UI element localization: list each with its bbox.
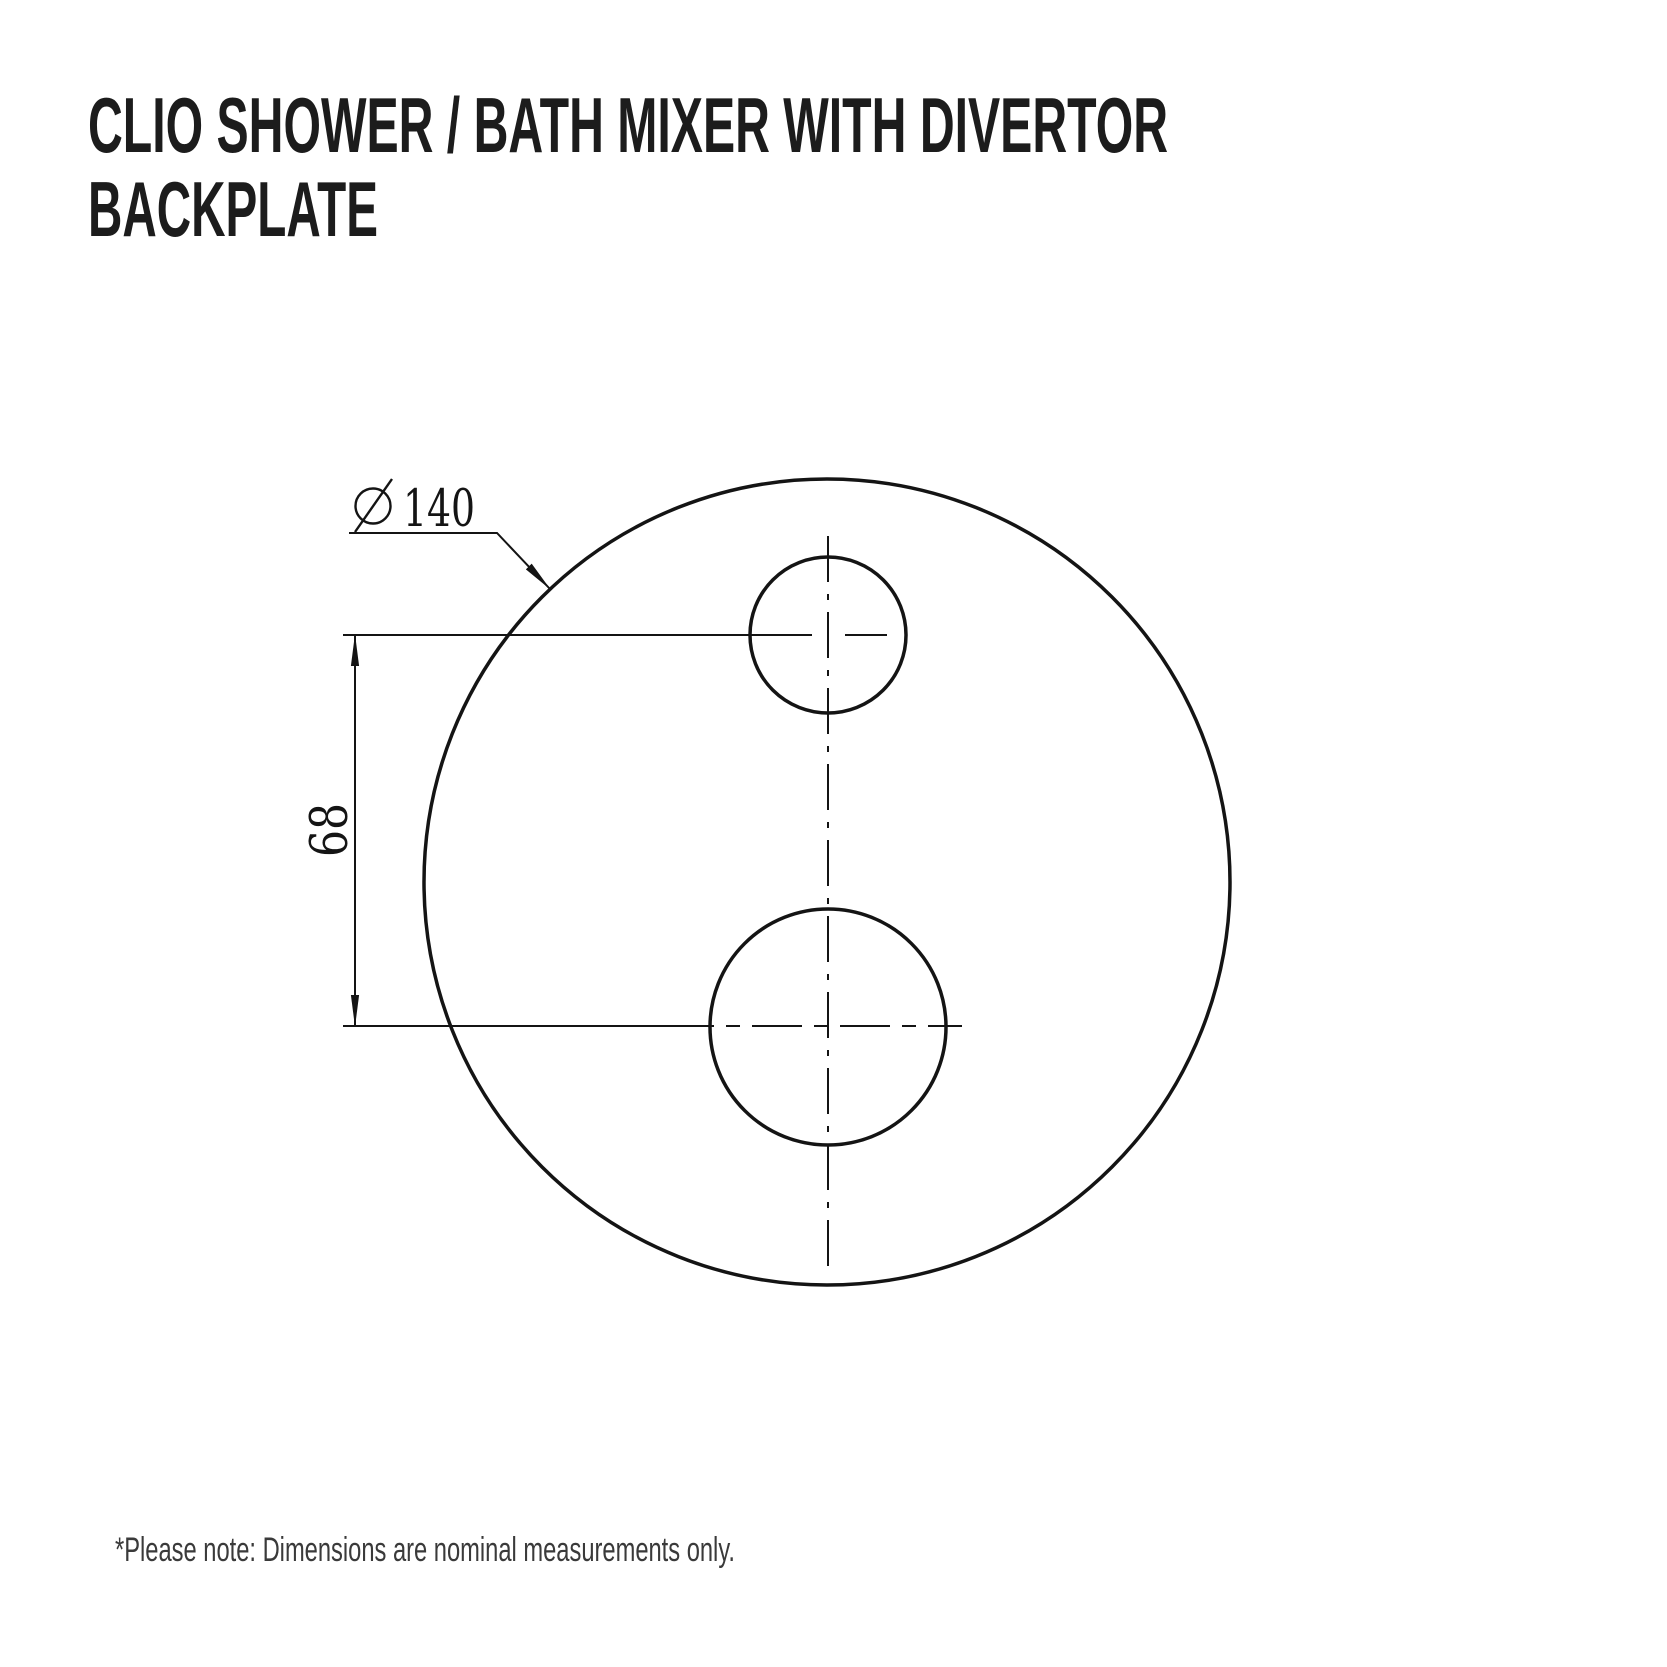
footer-note: *Please note: Dimensions are nominal mea…	[115, 1531, 735, 1569]
diameter-leader-line	[349, 533, 550, 589]
page-title-line2: BACKPLATE	[88, 165, 378, 253]
diameter-symbol-icon	[355, 479, 392, 532]
page-title-line1: CLIO SHOWER / BATH MIXER WITH DIVERTOR	[88, 81, 1168, 169]
technical-drawing-canvas: CLIO SHOWER / BATH MIXER WITH DIVERTOR B…	[0, 0, 1667, 1667]
spec-sheet-page: CLIO SHOWER / BATH MIXER WITH DIVERTOR B…	[0, 0, 1667, 1667]
diameter-dimension-value: 140	[403, 480, 475, 539]
spacing-dimension-value: 68	[301, 803, 360, 857]
